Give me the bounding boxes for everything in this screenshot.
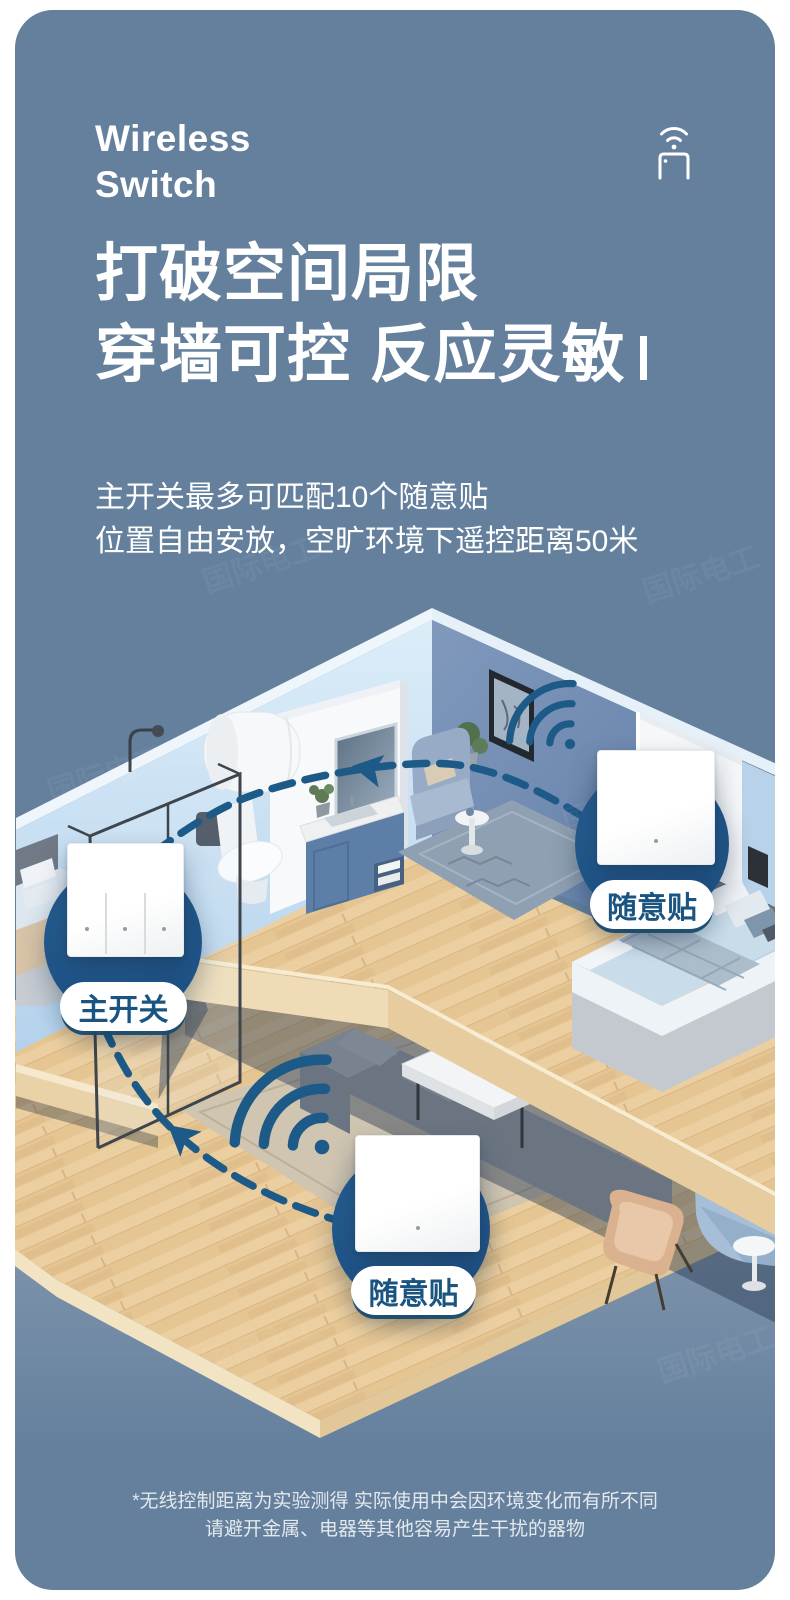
poster-card: Wireless Switch 打破空间局限 穿墙可控 反应灵敏 主开关最多可匹… (15, 10, 775, 1590)
sticker-switch-panel (355, 1135, 480, 1252)
switch-gang (68, 844, 106, 956)
hero-subtitle: 主开关最多可匹配10个随意贴 位置自由安放，空旷环境下遥控距离50米 (95, 476, 638, 564)
title-cursor-bar (640, 336, 647, 380)
sticker-switch-label: 随意贴 (351, 1266, 476, 1315)
main-switch-panel (67, 843, 184, 957)
switch-gang (356, 1136, 479, 1251)
switch-gang (106, 844, 144, 956)
sticker-switch-label: 随意贴 (590, 880, 714, 929)
indicator-dot (416, 1226, 420, 1230)
indicator-dot (85, 927, 89, 931)
hero-title: 打破空间局限 穿墙可控 反应灵敏 (95, 234, 647, 396)
title-line2: 穿墙可控 反应灵敏 (95, 315, 647, 396)
product-poster: Wireless Switch 打破空间局限 穿墙可控 反应灵敏 主开关最多可匹… (0, 0, 790, 1600)
brand-line1: Wireless (95, 116, 251, 162)
indicator-dot (162, 927, 166, 931)
disclaimer-line1: *无线控制距离为实验测得 实际使用中会因环境变化而有所不同 (15, 1488, 775, 1516)
disclaimer: *无线控制距离为实验测得 实际使用中会因环境变化而有所不同 请避开金属、电器等其… (15, 1488, 775, 1544)
disclaimer-line2: 请避开金属、电器等其他容易产生干扰的器物 (15, 1516, 775, 1544)
subtitle-line1: 主开关最多可匹配10个随意贴 (95, 476, 638, 520)
main-switch-label: 主开关 (60, 982, 187, 1031)
indicator-dot (123, 927, 127, 931)
title-line1: 打破空间局限 (95, 234, 647, 315)
brand-line2: Switch (95, 162, 251, 208)
sticker-switch-panel (597, 750, 715, 865)
brand-logo: Wireless Switch (95, 116, 251, 208)
subtitle-line2: 位置自由安放，空旷环境下遥控距离50米 (95, 520, 638, 564)
indicator-dot (654, 839, 658, 843)
switch-gang (145, 844, 183, 956)
switch-gang (598, 751, 714, 864)
wireless-switch-icon (651, 122, 697, 182)
